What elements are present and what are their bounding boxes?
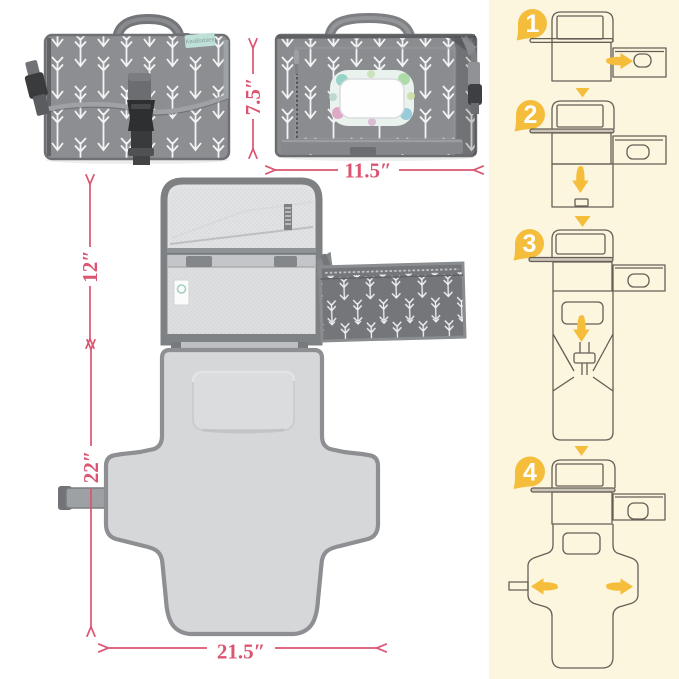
svg-text:2: 2: [524, 101, 538, 129]
svg-text:12″: 12″: [78, 250, 102, 283]
svg-text:7.5″: 7.5″: [241, 78, 265, 116]
svg-text:4: 4: [523, 459, 537, 487]
svg-text:21.5″: 21.5″: [217, 640, 265, 664]
svg-text:11.5″: 11.5″: [344, 159, 391, 183]
svg-text:3: 3: [523, 230, 537, 258]
svg-text:1: 1: [526, 10, 540, 38]
svg-text:22″: 22″: [79, 451, 103, 484]
